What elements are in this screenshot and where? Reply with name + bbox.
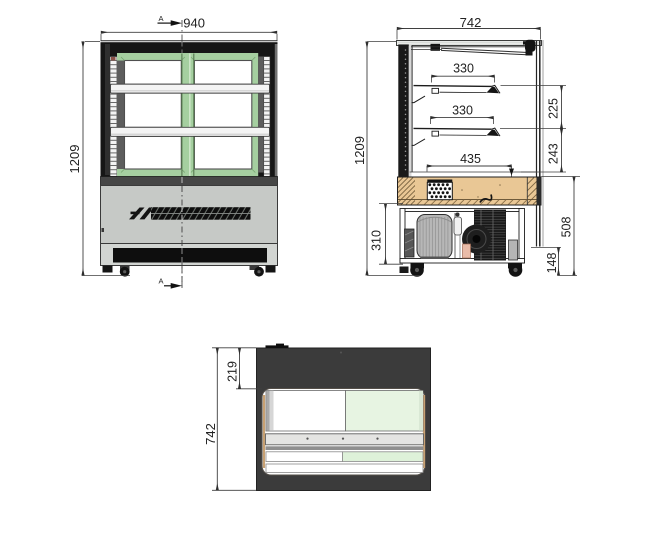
svg-text:330: 330 (453, 62, 474, 76)
svg-text:225: 225 (547, 98, 561, 119)
svg-text:310: 310 (370, 230, 384, 251)
svg-text:742: 742 (203, 423, 218, 445)
svg-text:1209: 1209 (352, 136, 367, 165)
svg-text:940: 940 (183, 16, 205, 31)
svg-text:243: 243 (547, 143, 561, 164)
svg-text:148: 148 (545, 253, 559, 274)
svg-text:742: 742 (460, 15, 482, 30)
svg-text:508: 508 (559, 217, 573, 238)
svg-text:219: 219 (226, 361, 240, 382)
svg-text:1209: 1209 (67, 145, 82, 174)
svg-text:330: 330 (452, 104, 473, 118)
svg-text:435: 435 (460, 152, 481, 166)
svg-text:A: A (158, 277, 163, 286)
svg-text:A: A (158, 14, 163, 23)
